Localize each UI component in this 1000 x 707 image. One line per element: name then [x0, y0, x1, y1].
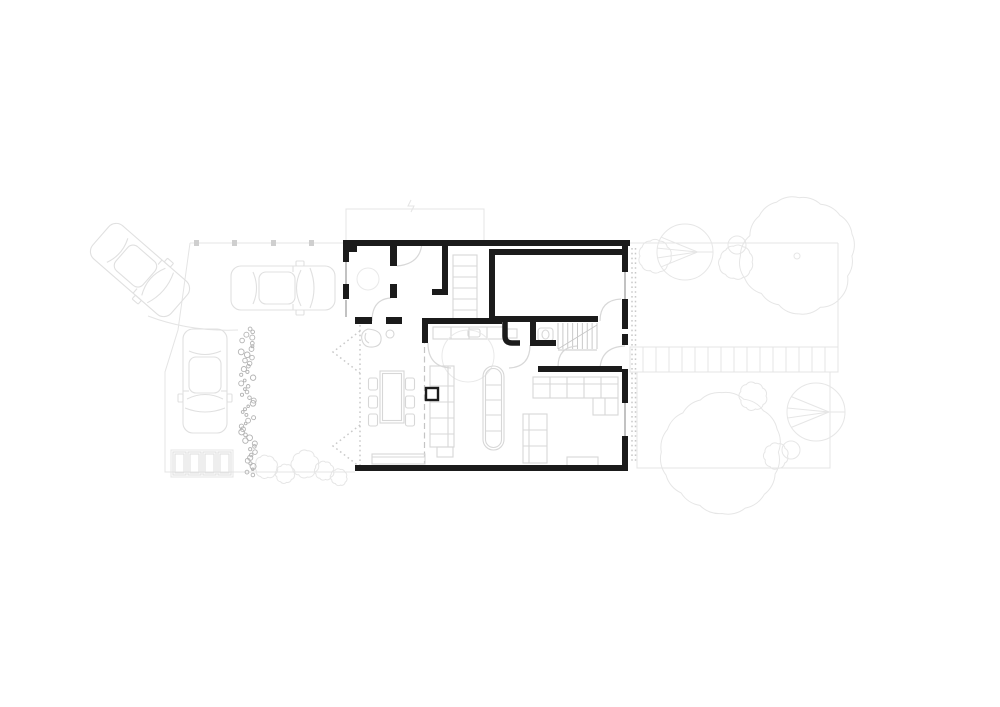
car-turning [83, 216, 197, 325]
tree-canopy [660, 392, 780, 514]
fence-post [271, 240, 276, 246]
hedge-leaf [252, 416, 256, 420]
hedge-leaf [243, 438, 248, 443]
hedge-leaf [244, 352, 250, 358]
shrub [330, 469, 347, 486]
hedge-leaf [250, 335, 255, 340]
kitchen-tall-unit [430, 366, 454, 457]
hedge-leaf [244, 332, 249, 337]
middle-wall [422, 318, 502, 324]
terrace-path [630, 347, 838, 372]
waste-bin-lid [190, 454, 199, 473]
middle-wall-stub [422, 318, 428, 343]
entry-partition-piece [390, 284, 397, 298]
stairs [558, 323, 597, 350]
shrub [291, 450, 319, 478]
hall-kitchen-door-arc [428, 343, 451, 368]
living-wall [538, 366, 622, 372]
waste-bin-lid [175, 454, 184, 473]
east-wall-b [622, 299, 628, 329]
tree-canopy [739, 197, 854, 314]
hedge-leaf [245, 413, 248, 416]
garage-north-wall [489, 249, 622, 255]
kitchen-run-east [533, 377, 618, 415]
tv-board [567, 457, 598, 466]
patio-dining-table [369, 371, 415, 426]
kitchen-counter-north [433, 327, 505, 339]
wc-door-arc [509, 345, 530, 368]
shrubs [255, 450, 347, 486]
floor-plan-page [0, 0, 1000, 707]
tree-circle [794, 253, 800, 259]
tree-canopy [739, 382, 767, 410]
car-driveway [231, 261, 335, 315]
hedge [238, 327, 257, 477]
hall-wall [442, 246, 448, 295]
east-wall-c [622, 334, 628, 345]
east-wall-d [622, 369, 628, 403]
living-door-arc [558, 346, 577, 367]
west-wall-b [343, 284, 349, 299]
gravel-strip [632, 248, 636, 463]
hedge-leaf [247, 405, 250, 408]
hedge-leaf [250, 355, 255, 360]
hall-wardrobe [453, 255, 477, 321]
hedge-leaf [243, 379, 246, 382]
hedge-leaf [240, 373, 243, 376]
hedge-leaf [253, 450, 258, 455]
wc-wall-foot [530, 340, 556, 346]
tree-canopy [719, 245, 753, 279]
hedge-leaf [250, 375, 255, 380]
patio-planter [362, 329, 394, 347]
garage-door-arc [600, 299, 621, 321]
garden-door-arc [600, 346, 625, 369]
entry-partition-stub [390, 246, 397, 266]
hedge-leaf [238, 349, 244, 355]
hedge-leaf [249, 448, 252, 451]
boundary-top-right [630, 243, 838, 347]
car-parked [178, 329, 232, 433]
fence-post [232, 240, 237, 246]
hedge-leaf [246, 370, 249, 373]
fence-post [194, 240, 199, 246]
bifold-door-marker [333, 331, 360, 373]
rear-garden-outline [637, 372, 830, 468]
bench [372, 454, 425, 464]
hedge-leaf [248, 396, 252, 400]
hedge-leaf [244, 422, 247, 425]
south-wall [355, 465, 628, 471]
wc-curved-wall [505, 322, 520, 343]
waste-bins [171, 450, 233, 477]
fence-post [309, 240, 314, 246]
hedge-leaf [240, 393, 243, 396]
garage-south-wall [489, 316, 598, 322]
hedge-leaf [246, 385, 250, 389]
tree-circle [782, 441, 800, 459]
waste-bin-lid [205, 454, 214, 473]
entry-stub-a [355, 317, 372, 324]
hedge-leaf [244, 408, 247, 411]
sofa [523, 414, 547, 463]
west-wall-a [343, 246, 349, 262]
toilet [538, 328, 553, 341]
hedge-leaf [251, 473, 255, 477]
break-mark [408, 200, 414, 212]
hedge-leaf [240, 338, 245, 343]
house-walls [343, 240, 630, 471]
vehicles [83, 216, 335, 433]
patio-column [426, 388, 438, 400]
east-wall-a [622, 240, 628, 272]
bifold-door-marker [333, 425, 360, 467]
entry-floor-mark [357, 268, 379, 290]
driveway-curve [148, 316, 238, 330]
hedge-leaf [243, 358, 248, 363]
waste-bin-lid [220, 454, 229, 473]
kitchen-island [483, 366, 504, 450]
floor-plan-canvas [0, 0, 1000, 707]
hedge-leaf [241, 411, 244, 414]
hedge-leaf [245, 390, 249, 394]
roof-outline-above-house [346, 200, 484, 240]
hedge-leaf [239, 381, 244, 386]
garage-west-wall [489, 249, 495, 322]
hall-wall-foot [432, 289, 448, 295]
hedge-leaf [251, 330, 255, 334]
shrub [255, 455, 278, 478]
entry-stub-b [386, 317, 402, 324]
